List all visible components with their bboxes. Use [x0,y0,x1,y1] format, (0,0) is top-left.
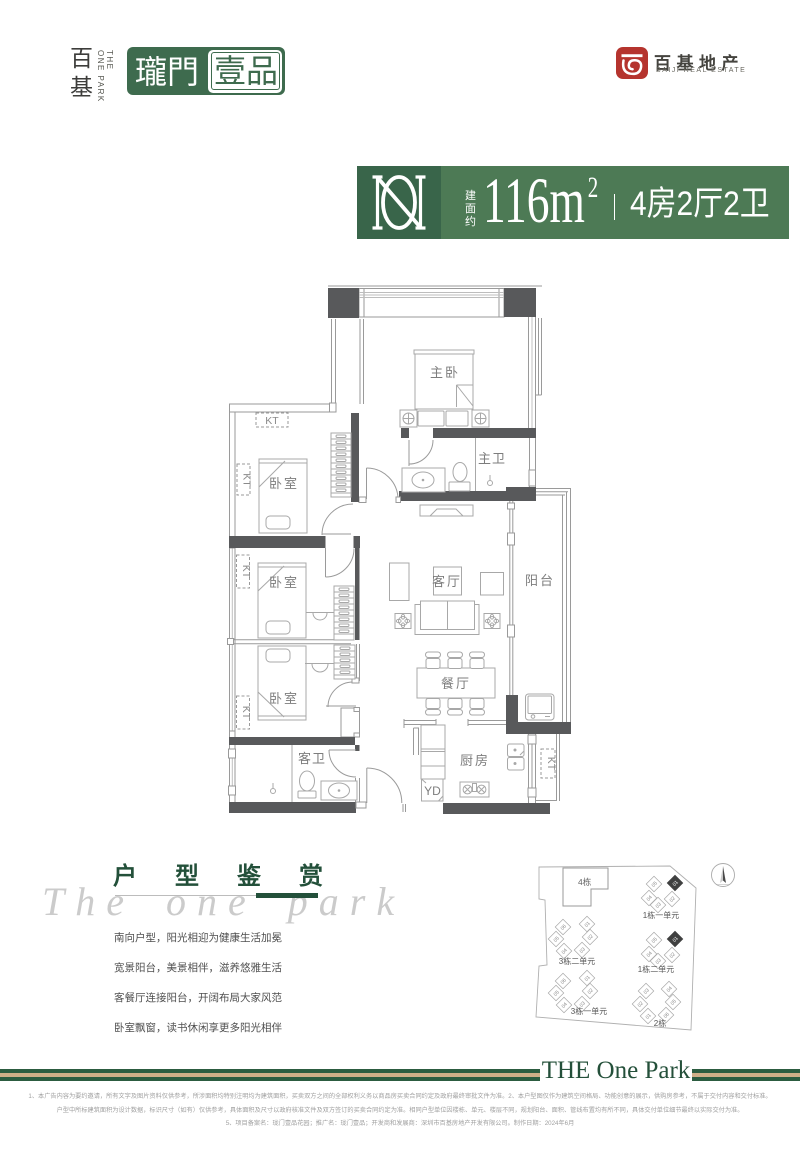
svg-text:3栋一单元: 3栋一单元 [571,1006,607,1016]
svg-text:1栋一单元: 1栋一单元 [643,910,679,920]
svg-text:4栋: 4栋 [578,877,592,887]
svg-text:3栋二单元: 3栋二单元 [559,956,595,966]
svg-text:2栋: 2栋 [654,1018,666,1028]
svg-text:1栋二单元: 1栋二单元 [638,964,674,974]
